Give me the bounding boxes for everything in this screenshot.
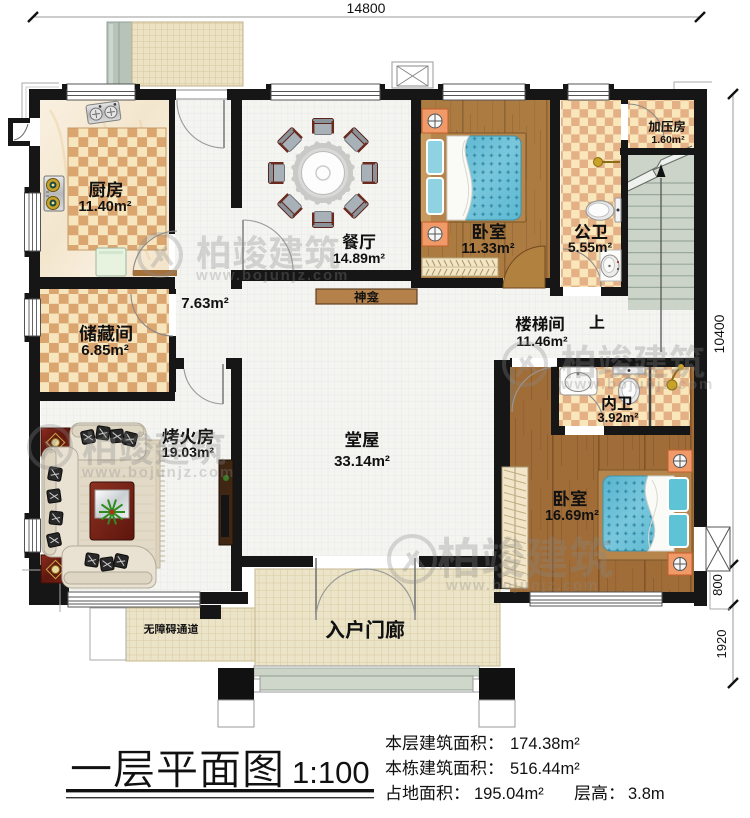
svg-text:174.38m²: 174.38m²: [510, 735, 580, 753]
svg-text:www.bojunjz.com: www.bojunjz.com: [81, 464, 235, 481]
svg-text:1920: 1920: [714, 630, 729, 659]
svg-text:11.33m²: 11.33m²: [461, 241, 514, 257]
svg-text:www.bojunjz.com: www.bojunjz.com: [560, 376, 714, 393]
svg-text:www.bojunjz.com: www.bojunjz.com: [445, 577, 599, 594]
svg-text:16.69m²: 16.69m²: [545, 508, 599, 524]
svg-text:800: 800: [710, 574, 725, 596]
svg-text:14800: 14800: [347, 0, 386, 16]
svg-text:3.92m²: 3.92m²: [597, 410, 639, 425]
svg-text:195.04m²: 195.04m²: [474, 785, 544, 803]
svg-text:3.8m: 3.8m: [628, 785, 665, 803]
svg-text:11.46m²: 11.46m²: [516, 333, 568, 349]
svg-text:6.85m²: 6.85m²: [81, 342, 129, 359]
svg-text:www.bojunjz.com: www.bojunjz.com: [195, 267, 349, 284]
svg-text:11.40m²: 11.40m²: [78, 199, 131, 215]
svg-text:10400: 10400: [711, 314, 727, 353]
svg-text:33.14m²: 33.14m²: [334, 453, 390, 470]
svg-text:1:100: 1:100: [292, 755, 370, 790]
svg-text:1.60m²: 1.60m²: [651, 134, 685, 146]
svg-text:516.44m²: 516.44m²: [510, 760, 580, 778]
svg-text:7.63m²: 7.63m²: [181, 295, 229, 312]
svg-text:5.55m²: 5.55m²: [568, 239, 613, 255]
svg-text:14.89m²: 14.89m²: [333, 250, 385, 266]
